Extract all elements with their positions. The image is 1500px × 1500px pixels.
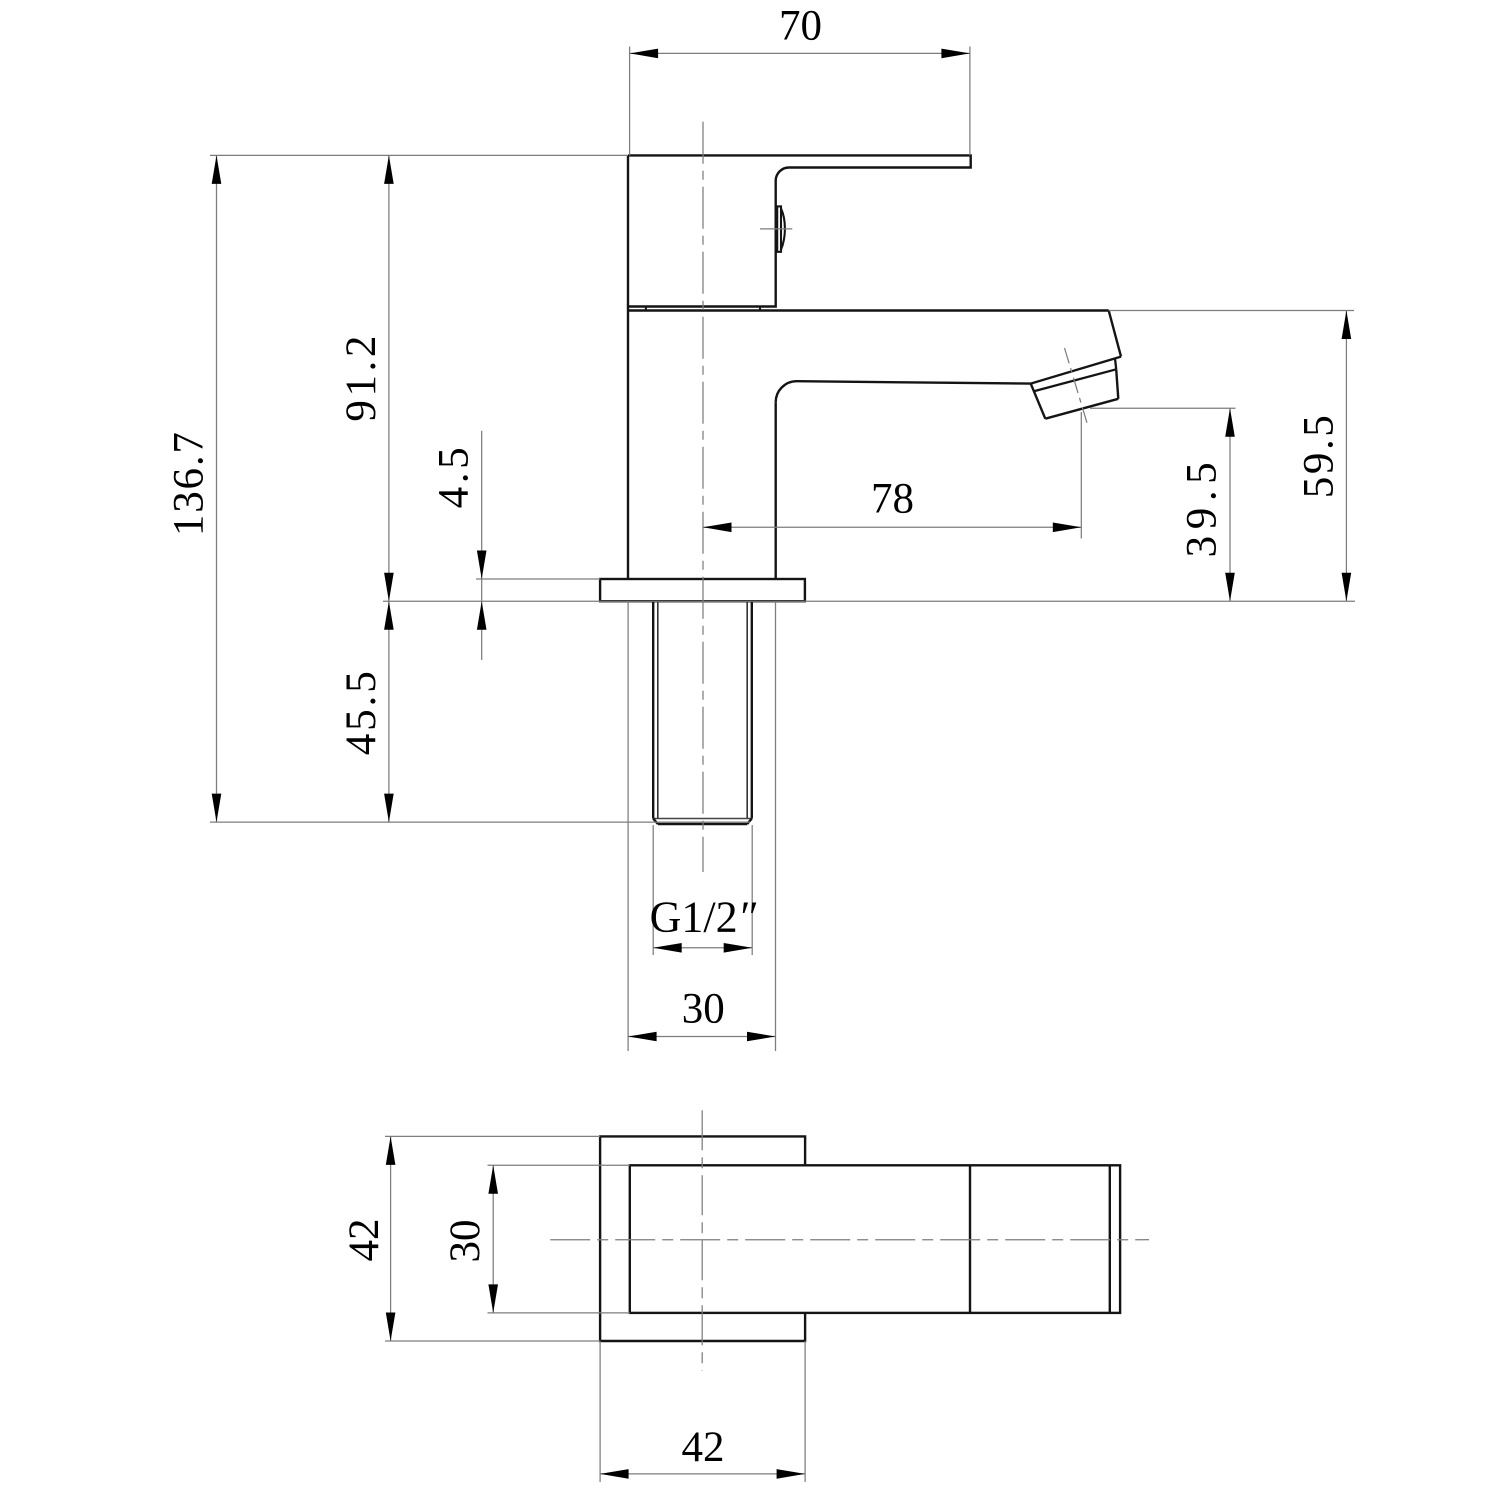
svg-text:G1/2″: G1/2″ bbox=[650, 892, 757, 941]
svg-text:30: 30 bbox=[682, 985, 725, 1032]
svg-text:136.7: 136.7 bbox=[166, 432, 213, 536]
svg-text:78: 78 bbox=[871, 476, 914, 523]
svg-text:39.5: 39.5 bbox=[1179, 462, 1226, 557]
svg-text:70: 70 bbox=[779, 3, 822, 50]
svg-text:30: 30 bbox=[442, 1220, 489, 1263]
svg-text:59.5: 59.5 bbox=[1295, 415, 1342, 498]
svg-text:45.5: 45.5 bbox=[338, 671, 385, 755]
svg-text:4.5: 4.5 bbox=[431, 447, 478, 508]
svg-text:42: 42 bbox=[682, 1424, 725, 1471]
svg-text:91.2: 91.2 bbox=[338, 336, 385, 422]
svg-text:42: 42 bbox=[341, 1219, 388, 1262]
